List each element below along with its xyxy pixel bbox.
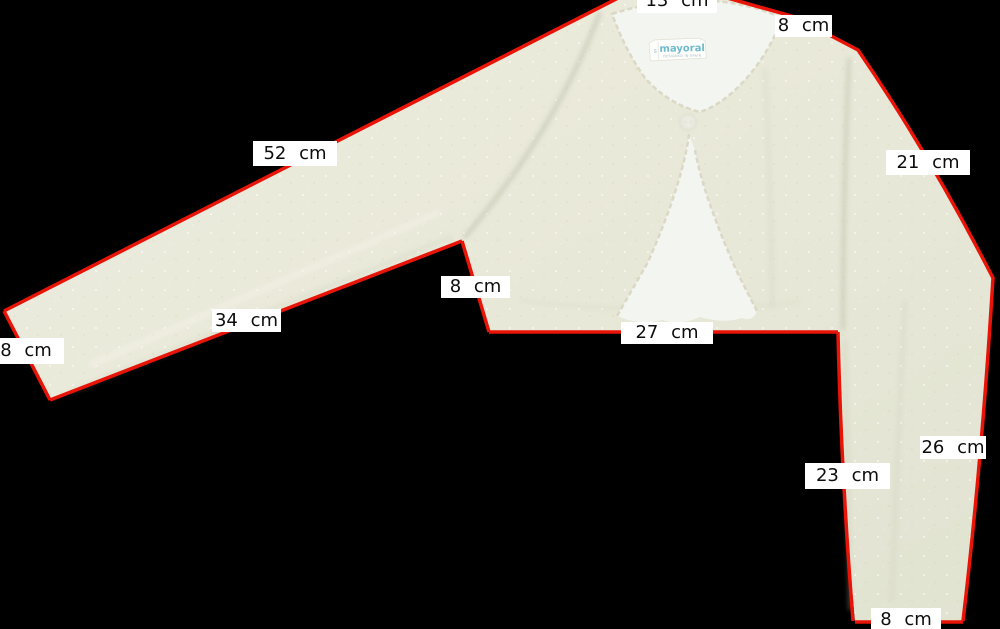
measurement-label-left-sleeve-underarm-length: 34 cm <box>212 309 281 332</box>
measurement-label-right-sleeve-inner-length: 23 cm <box>805 463 890 489</box>
measurement-label-left-cuff-width: 8 cm <box>0 338 64 364</box>
measurement-label-neck-width: 13 cm <box>637 0 717 13</box>
measurement-label-right-cuff-width: 8 cm <box>871 608 941 629</box>
garment-photo: s mayoral DESIGNED IN SPAIN <box>4 0 993 622</box>
measurement-label-neck-to-shoulder: 8 cm <box>775 15 832 37</box>
measurement-label-left-sleeve-top-length: 52 cm <box>253 141 337 166</box>
neck-button <box>681 115 696 130</box>
annotated-product-photo: s mayoral DESIGNED IN SPAIN <box>0 0 1000 629</box>
measurement-label-right-sleeve-outer-length: 26 cm <box>920 436 986 459</box>
brand-tag: s mayoral DESIGNED IN SPAIN <box>649 38 706 61</box>
measurement-label-hem-width: 27 cm <box>621 322 713 344</box>
measurement-label-right-shoulder-seam-length: 21 cm <box>886 150 970 175</box>
measurement-label-side-seam-height: 8 cm <box>441 276 510 298</box>
tag-size-letter: s <box>654 48 657 55</box>
tag-subtext: DESIGNED IN SPAIN <box>663 54 701 59</box>
measurement-diagram: s mayoral DESIGNED IN SPAIN 13 cm <box>0 0 1000 629</box>
